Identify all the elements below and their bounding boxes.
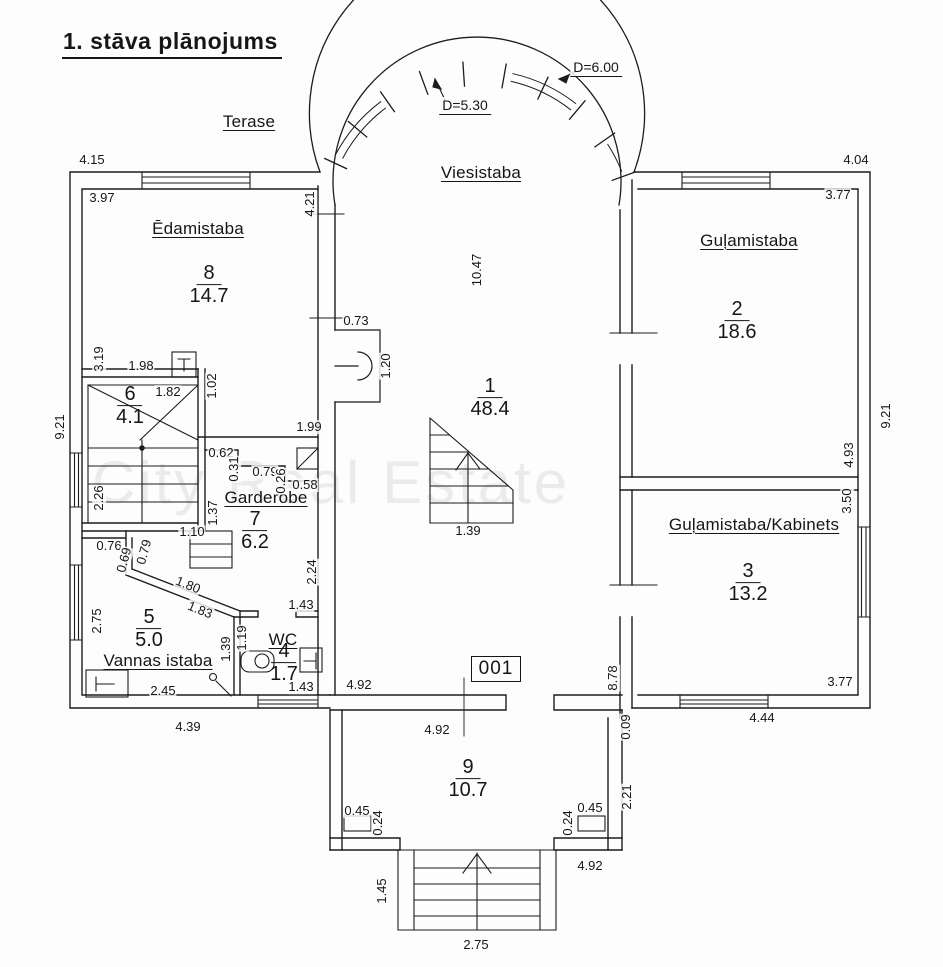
- dimension-label: 1.99: [295, 420, 322, 434]
- room-area-3: 13.2: [729, 584, 768, 605]
- dimension-label: 1.98: [127, 359, 154, 373]
- dimension-label: 3.50: [840, 487, 854, 514]
- room-number-2: 2: [724, 299, 749, 321]
- unit-number-badge: 001: [471, 656, 521, 682]
- dimension-label: 9.21: [53, 413, 67, 440]
- dimension-label: 2.21: [620, 783, 634, 810]
- dimension-label: 0.73: [342, 314, 369, 328]
- terrace-label: Terase: [223, 112, 275, 132]
- room-area-fraction-9: 910.7: [449, 757, 488, 801]
- dimension-label: 0.24: [561, 809, 575, 836]
- arch-inner-diameter-label: D=5.30: [439, 97, 491, 115]
- room-area-fraction-5: 55.0: [135, 607, 163, 651]
- room-area-fraction-7: 76.2: [241, 509, 269, 553]
- room-number-1: 1: [477, 376, 502, 398]
- room-area-8: 14.7: [190, 286, 229, 307]
- room-number-4: 4: [271, 641, 296, 663]
- dimension-label: 8.78: [606, 664, 620, 691]
- dimension-label: 4.44: [748, 711, 775, 725]
- room-number-8: 8: [196, 263, 221, 285]
- dimension-label: 4.39: [174, 720, 201, 734]
- dimension-label: 4.92: [345, 678, 372, 692]
- room-area-fraction-3: 313.2: [729, 561, 768, 605]
- floorplan-drawing: [0, 0, 943, 967]
- dimension-label: 2.26: [92, 484, 106, 511]
- dimension-label: 0.58: [291, 478, 318, 492]
- dimension-label: 2.45: [149, 684, 176, 698]
- dimension-label: 1.37: [206, 499, 220, 526]
- room-area-9: 10.7: [449, 780, 488, 801]
- hall-staircase: [430, 418, 513, 523]
- dimension-label: 3.19: [92, 345, 106, 372]
- room-number-6: 6: [117, 384, 142, 406]
- room-area-2: 18.6: [718, 322, 757, 343]
- room-name-5: Vannas istaba: [103, 651, 212, 671]
- room-name-1: Viesistaba: [441, 163, 521, 183]
- hall-bottom-wall: [330, 678, 622, 736]
- dimension-label: 0.09: [619, 713, 633, 740]
- dimension-label: 3.77: [824, 188, 851, 202]
- dimension-label: 1.39: [219, 635, 233, 662]
- dimension-label: 1.19: [235, 624, 249, 651]
- room-number-3: 3: [735, 561, 760, 583]
- room-area-fraction-2: 218.6: [718, 299, 757, 343]
- room-area-7: 6.2: [241, 532, 269, 553]
- dimension-label: 4.21: [303, 190, 317, 217]
- dimension-label: 4.93: [842, 441, 856, 468]
- room-number-9: 9: [455, 757, 480, 779]
- room-area-fraction-8: 814.7: [190, 263, 229, 307]
- dimension-label: 2.75: [462, 938, 489, 952]
- room-area-fraction-6: 64.1: [116, 384, 144, 428]
- page-title: 1. stāva plānojums: [62, 28, 282, 59]
- dimension-label: 4.04: [842, 153, 869, 167]
- dimension-label: 0.26: [274, 467, 288, 494]
- dimension-label: 1.82: [154, 385, 181, 399]
- dimension-label: 0.45: [343, 804, 370, 818]
- room-number-7: 7: [242, 509, 267, 531]
- bath-door-swing: [210, 674, 232, 697]
- fireplace: [335, 330, 380, 402]
- dimension-label: 0.31: [227, 455, 241, 482]
- dimension-label: 2.75: [90, 607, 104, 634]
- dimension-label: 1.39: [454, 524, 481, 538]
- entrance-stairs: [398, 850, 556, 930]
- dimension-label: 4.15: [78, 153, 105, 167]
- dimension-label: 1.45: [375, 877, 389, 904]
- dimension-label: 1.10: [178, 525, 205, 539]
- arch-outer-diameter-label: D=6.00: [570, 59, 622, 77]
- floor-plan-page: City Real Estate: [0, 0, 943, 967]
- dimension-label: 3.77: [826, 675, 853, 689]
- dimension-label: 9.21: [879, 402, 893, 429]
- room-area-5: 5.0: [135, 630, 163, 651]
- dimension-label: 0.24: [371, 809, 385, 836]
- dimension-label: 0.45: [576, 801, 603, 815]
- wc-toilet: [241, 651, 274, 672]
- dimension-label: 1.02: [205, 372, 219, 399]
- room-number-5: 5: [136, 607, 161, 629]
- vent-shaft: [297, 448, 318, 469]
- room-area-1: 48.4: [471, 399, 510, 420]
- dimension-label: 2.24: [305, 558, 319, 585]
- dimension-label: 10.47: [470, 253, 484, 288]
- room-name-2: Guļamistaba: [700, 231, 798, 251]
- bedroom-partition: [620, 477, 858, 490]
- dimension-label: 3.97: [88, 191, 115, 205]
- dimension-label: 1.20: [379, 352, 393, 379]
- room-area-6: 4.1: [116, 407, 144, 428]
- dimension-label: 1.43: [287, 598, 314, 612]
- dimension-label: 4.92: [423, 723, 450, 737]
- room-name-8: Ēdamistaba: [152, 219, 244, 239]
- dimension-label: 1.43: [287, 680, 314, 694]
- room-name-3: Guļamistaba/Kabinets: [669, 515, 839, 535]
- room-area-fraction-1: 148.4: [471, 376, 510, 420]
- dimension-label: 4.92: [576, 859, 603, 873]
